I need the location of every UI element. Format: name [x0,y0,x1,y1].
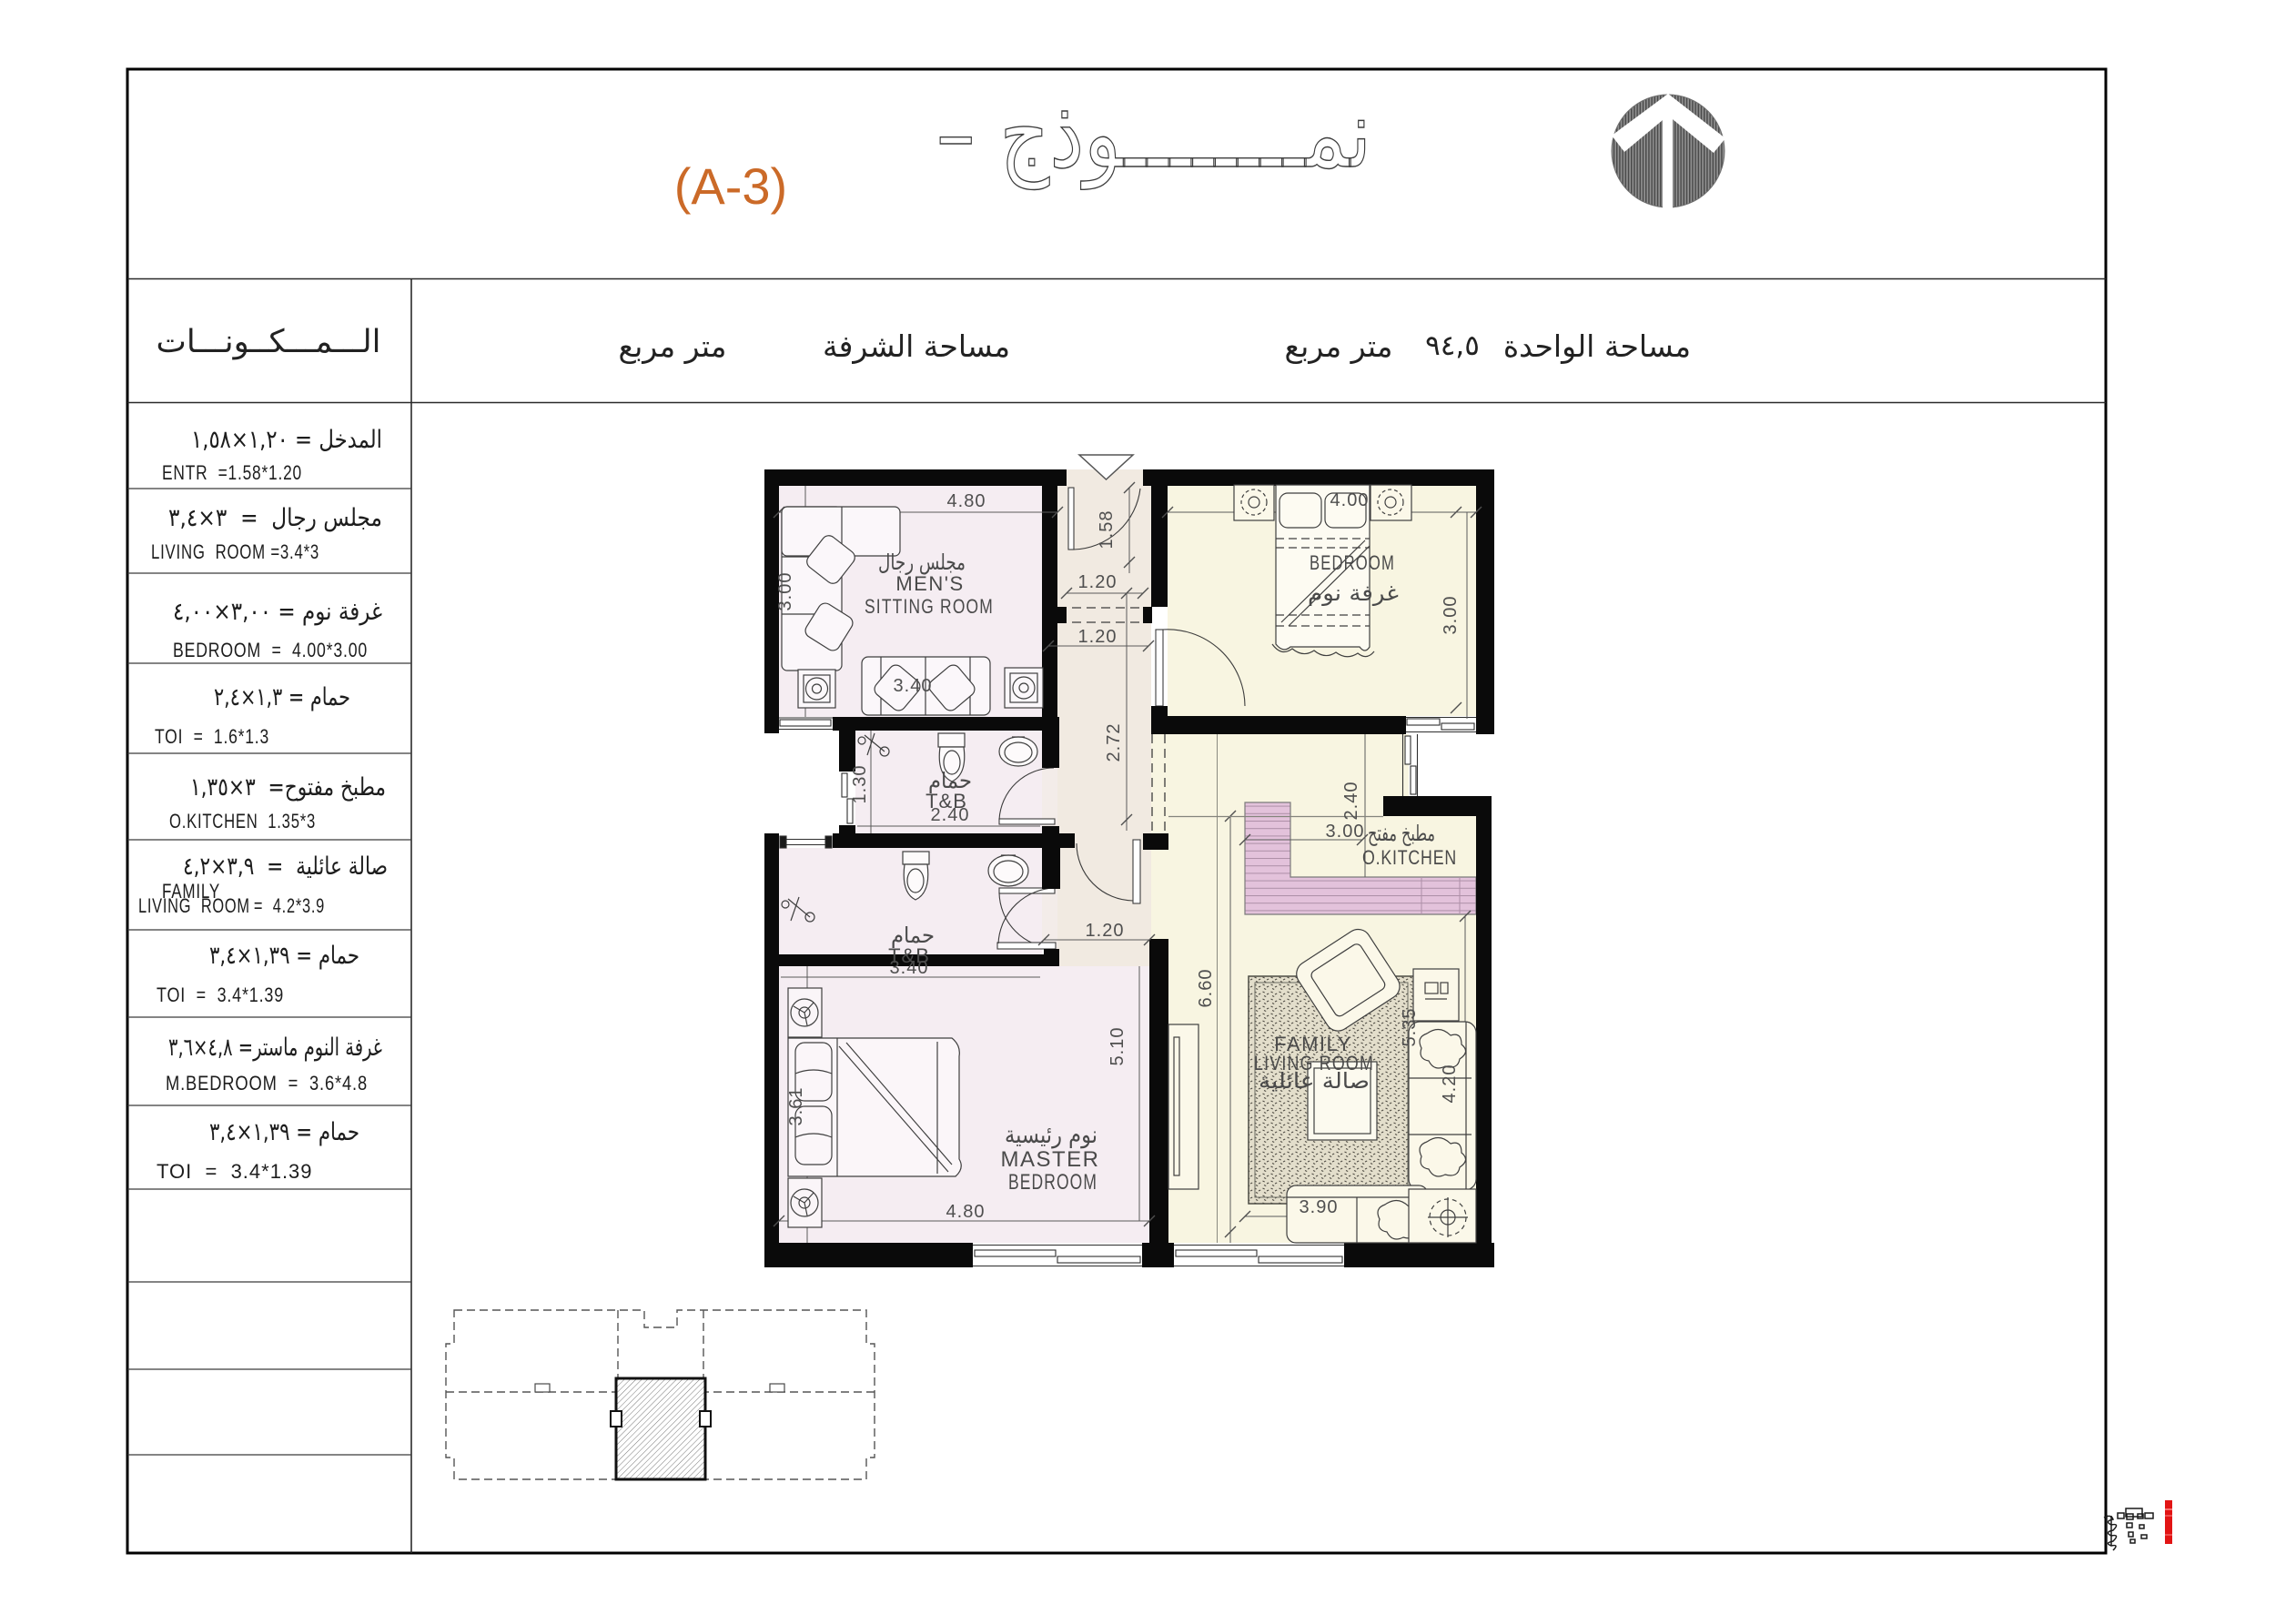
svg-text:4.20: 4.20 [1440,1064,1460,1104]
svg-text:TOI = 1.6*1.3: TOI = 1.6*1.3 [155,725,269,748]
svg-text:6.60: 6.60 [1196,969,1216,1008]
svg-text:BEDROOM: BEDROOM [1008,1170,1097,1195]
svg-text:متر مربع: متر مربع [1285,328,1393,364]
svg-text:MASTER: MASTER [1000,1147,1099,1172]
svg-text:صالة عائلية = ٣,٩×٤,٢: صالة عائلية = ٣,٩×٤,٢ [183,852,388,881]
svg-text:4.00: 4.00 [1330,490,1370,510]
svg-text:متر مربع: متر مربع [619,328,727,364]
svg-text:4.80: 4.80 [946,1202,986,1222]
svg-text:مساحة الواحدة: مساحة الواحدة [1503,328,1691,364]
svg-text:T&B: T&B [925,790,967,812]
svg-text:1.20: 1.20 [1078,627,1118,647]
svg-text:MEN'S: MEN'S [895,572,964,595]
svg-text:غرفة نوم: غرفة نوم [1308,580,1399,606]
svg-text:4.80: 4.80 [947,491,986,511]
svg-text:3.90: 3.90 [1300,1197,1339,1217]
svg-text:٩٤,٥: ٩٤,٥ [1425,329,1480,362]
svg-text:ENTR =1.58*1.20: ENTR =1.58*1.20 [162,461,302,484]
svg-text:غرفة النوم ماستر= ٤,٨×٣,٦: غرفة النوم ماستر= ٤,٨×٣,٦ [168,1034,382,1062]
svg-text:مساحة الشرفة: مساحة الشرفة [823,328,1010,364]
svg-text:مجلس رجال = ٣×٣,٤: مجلس رجال = ٣×٣,٤ [168,504,382,532]
svg-text:LIVING ROOM =3.4*3: LIVING ROOM =3.4*3 [151,540,319,563]
svg-text:مجلس رجال: مجلس رجال [878,550,966,575]
svg-text:5.10: 5.10 [1108,1027,1128,1066]
svg-text:مطبخ مفتح: مطبخ مفتح [1368,821,1435,846]
svg-text:LIVING ROOM = 4.2*3.9: LIVING ROOM = 4.2*3.9 [138,894,325,917]
svg-text:2.40: 2.40 [1341,782,1361,821]
svg-text:TOI = 3.4*1.39: TOI = 3.4*1.39 [157,983,284,1006]
svg-text:3.61: 3.61 [786,1087,806,1126]
svg-text:حمام = ١,٣٩×٣,٤: حمام = ١,٣٩×٣,٤ [209,1118,359,1146]
svg-text:1.20: 1.20 [1078,572,1118,592]
svg-text:3.00: 3.00 [1441,596,1461,635]
svg-text:نمــــــــوذج –: نمــــــــوذج – [936,78,1371,190]
svg-text:1.30: 1.30 [850,765,870,804]
svg-text:O.KITCHEN: O.KITCHEN [1362,846,1457,869]
svg-text:3.40: 3.40 [894,676,933,696]
svg-text:BEDROOM: BEDROOM [1310,551,1395,574]
svg-text:المدخل = ١,٢٠×١,٥٨: المدخل = ١,٢٠×١,٥٨ [191,426,382,454]
svg-text:2.72: 2.72 [1104,723,1124,762]
svg-text:SITTING ROOM: SITTING ROOM [865,595,994,618]
svg-text:1.20: 1.20 [1086,921,1125,941]
svg-text:نوم رئيسية: نوم رئيسية [1005,1122,1097,1149]
svg-text:T&B: T&B [888,944,930,967]
svg-text:حمام = ١,٣×٢,٤: حمام = ١,٣×٢,٤ [214,683,350,711]
svg-text:مطبخ مفتوح= ٣×١,٣٥: مطبخ مفتوح= ٣×١,٣٥ [190,773,386,802]
svg-text:غرفة نوم = ٣,٠٠×٤,٠٠: غرفة نوم = ٣,٠٠×٤,٠٠ [173,598,382,626]
svg-text:1.58: 1.58 [1097,510,1117,550]
svg-text:5.35: 5.35 [1400,1008,1420,1047]
svg-text:حمام = ١,٣٩×٣,٤: حمام = ١,٣٩×٣,٤ [209,942,359,970]
svg-text:M.BEDROOM = 3.6*4.8: M.BEDROOM = 3.6*4.8 [166,1072,368,1094]
svg-text:BEDROOM = 4.00*3.00: BEDROOM = 4.00*3.00 [173,639,368,661]
svg-text:3.00: 3.00 [1326,822,1365,842]
svg-text:3.00: 3.00 [775,572,795,611]
svg-text:TOI = 3.4*1.39: TOI = 3.4*1.39 [157,1160,313,1183]
svg-text:الـــمـــكــونـــات: الـــمـــكــونـــات [157,324,381,360]
svg-text:صالة عائلية: صالة عائلية [1259,1068,1370,1094]
svg-text:O.KITCHEN 1.35*3: O.KITCHEN 1.35*3 [169,810,316,832]
svg-text:(A-3): (A-3) [674,157,787,215]
